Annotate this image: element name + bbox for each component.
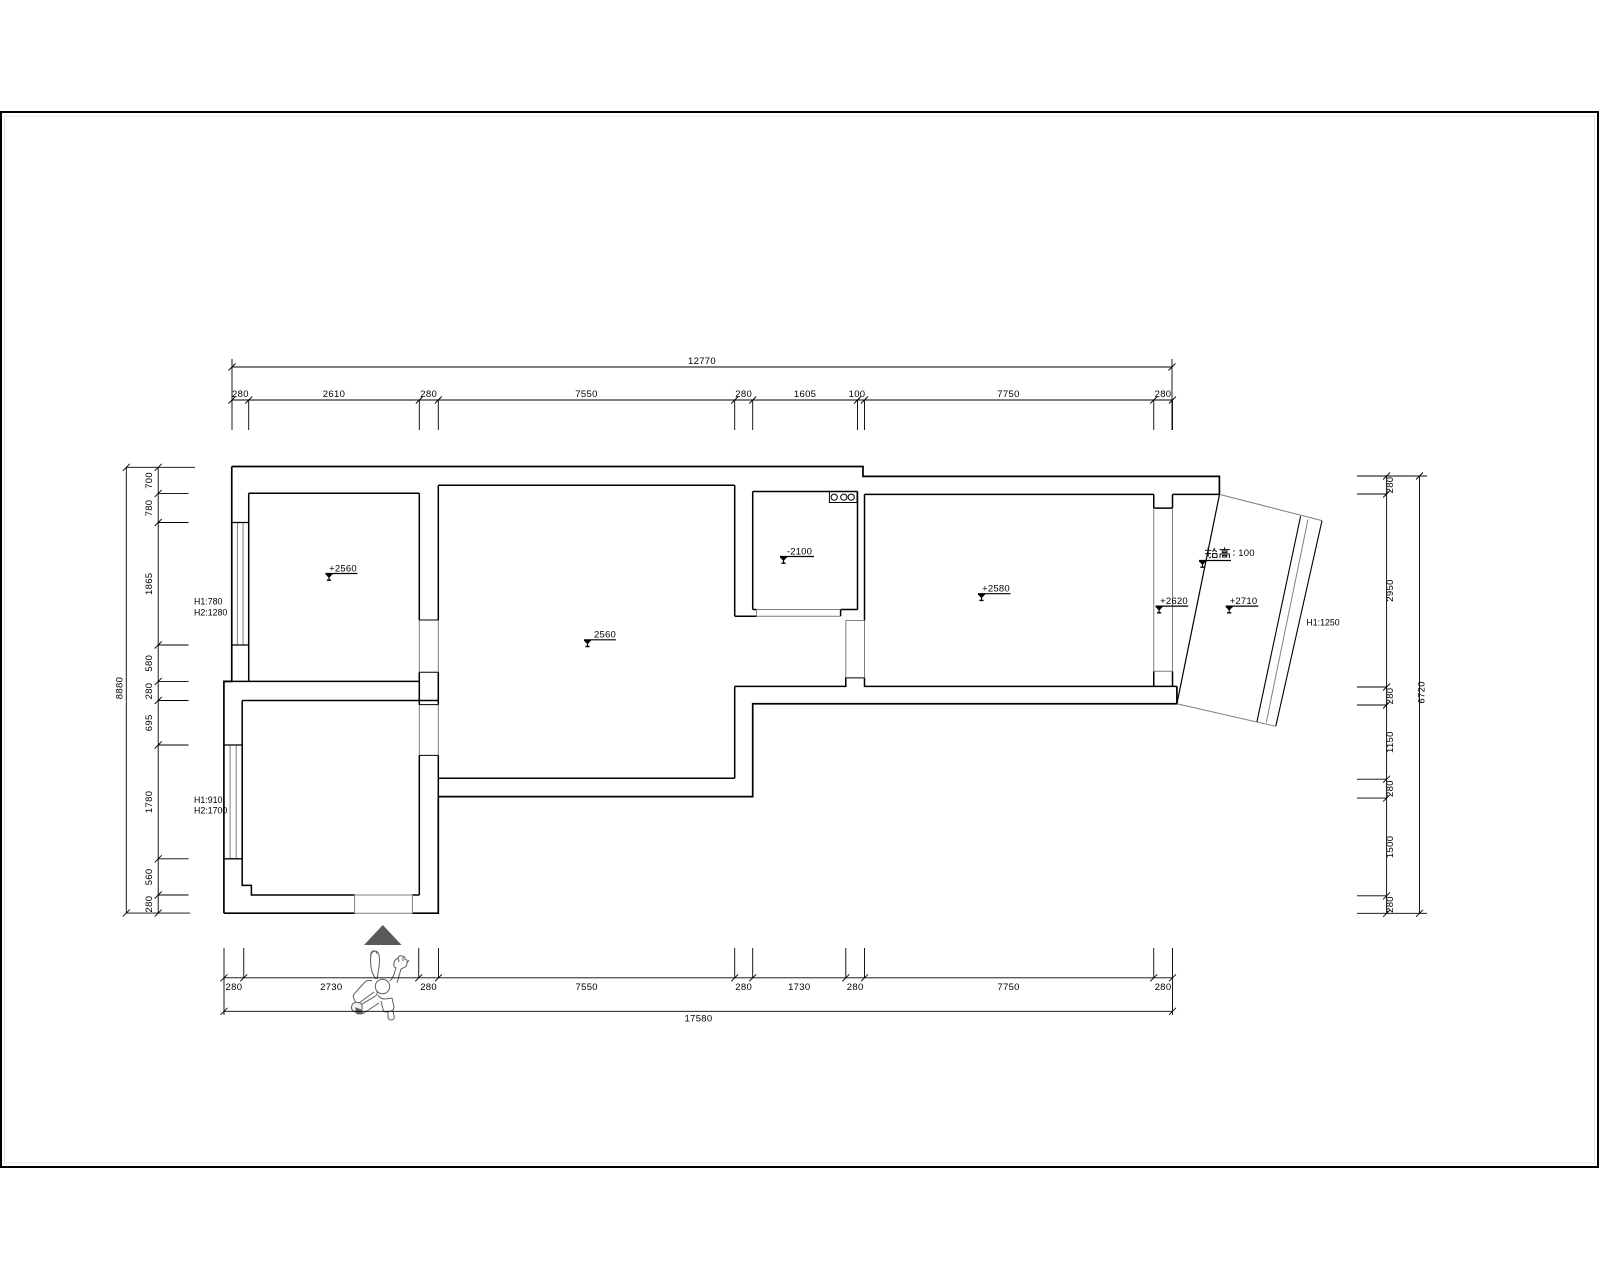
svg-text:7550: 7550 xyxy=(575,982,597,993)
svg-text:7750: 7750 xyxy=(997,982,1019,993)
svg-text:2610: 2610 xyxy=(323,389,345,400)
svg-text:1780: 1780 xyxy=(144,791,155,813)
svg-text:280: 280 xyxy=(1385,896,1396,913)
svg-text:280: 280 xyxy=(225,982,242,993)
svg-text:12770: 12770 xyxy=(688,356,716,367)
svg-text:1500: 1500 xyxy=(1385,836,1396,858)
svg-text:280: 280 xyxy=(144,896,155,913)
svg-text:+2710: +2710 xyxy=(1230,596,1258,607)
svg-text:700: 700 xyxy=(144,472,155,489)
svg-text:1150: 1150 xyxy=(1385,731,1396,753)
svg-text:280: 280 xyxy=(1155,389,1172,400)
svg-text:1730: 1730 xyxy=(788,982,810,993)
svg-text:H1:910: H1:910 xyxy=(194,795,222,805)
svg-text:H2:1700: H2:1700 xyxy=(194,805,227,815)
svg-text:1865: 1865 xyxy=(144,573,155,595)
svg-text:+2620: +2620 xyxy=(1160,596,1188,607)
svg-text:100: 100 xyxy=(1238,548,1254,559)
svg-text:+2580: +2580 xyxy=(982,584,1010,595)
svg-text:6720: 6720 xyxy=(1417,681,1428,703)
svg-text:780: 780 xyxy=(144,500,155,517)
svg-text:7550: 7550 xyxy=(575,389,597,400)
svg-text:280: 280 xyxy=(735,389,752,400)
svg-text:280: 280 xyxy=(1155,982,1172,993)
svg-text:2950: 2950 xyxy=(1385,579,1396,601)
svg-text:H2:1280: H2:1280 xyxy=(194,608,227,618)
svg-text:2730: 2730 xyxy=(320,982,342,993)
svg-text:280: 280 xyxy=(232,389,249,400)
svg-text:+2560: +2560 xyxy=(329,564,357,575)
svg-text:8880: 8880 xyxy=(115,677,126,699)
svg-text:-2100: -2100 xyxy=(787,547,812,558)
svg-text:280: 280 xyxy=(420,389,437,400)
svg-text:H1:1250: H1:1250 xyxy=(1306,618,1339,628)
svg-text:580: 580 xyxy=(144,655,155,672)
svg-text:100: 100 xyxy=(849,389,866,400)
svg-text:280: 280 xyxy=(847,982,864,993)
svg-text:280: 280 xyxy=(144,683,155,700)
svg-text:280: 280 xyxy=(1385,780,1396,797)
svg-text:560: 560 xyxy=(144,868,155,885)
svg-text:1605: 1605 xyxy=(794,389,816,400)
svg-text:17580: 17580 xyxy=(684,1014,712,1025)
svg-text:280: 280 xyxy=(1385,688,1396,705)
svg-text:H1:780: H1:780 xyxy=(194,597,222,607)
svg-text:280: 280 xyxy=(735,982,752,993)
svg-text:280: 280 xyxy=(1385,477,1396,494)
svg-text:7750: 7750 xyxy=(997,389,1019,400)
svg-text:695: 695 xyxy=(144,714,155,731)
svg-text:2560: 2560 xyxy=(594,630,616,641)
svg-text:280: 280 xyxy=(420,982,437,993)
